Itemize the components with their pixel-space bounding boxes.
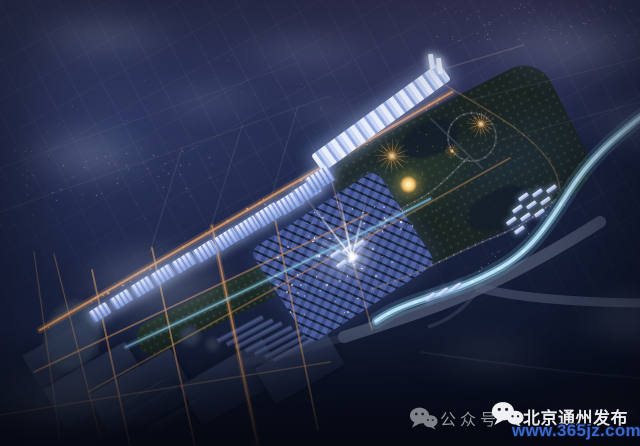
wechat-icon-gray	[409, 406, 438, 430]
watermark-site-url: www.365jz.com	[512, 421, 640, 441]
vignette	[0, 0, 640, 446]
aerial-night-render: 公众号 北京通州发布 www.365jz.com	[0, 0, 640, 446]
